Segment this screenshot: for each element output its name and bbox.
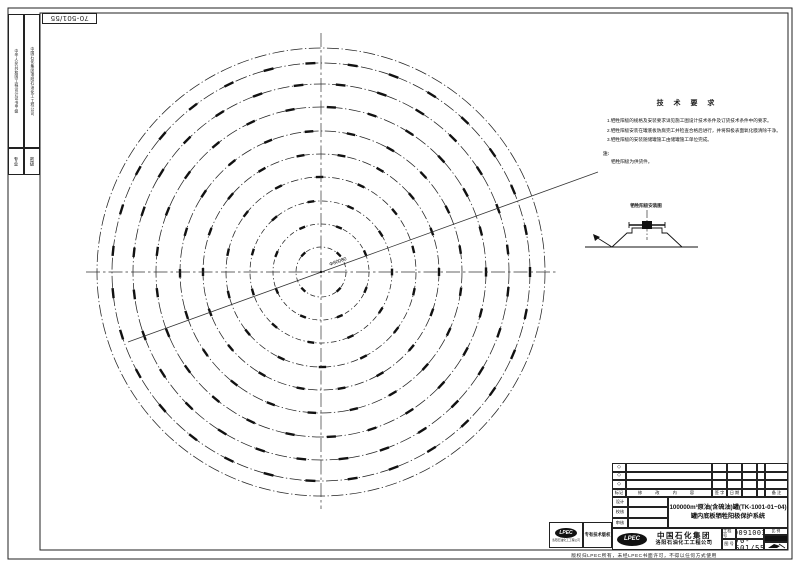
anode-mark	[305, 480, 315, 481]
anode-mark	[185, 171, 190, 178]
sign-row-check-label: 校核	[612, 507, 628, 517]
anode-mark	[368, 114, 377, 117]
drawing-no-label: 图 号	[722, 539, 736, 550]
anode-mark	[490, 149, 496, 157]
anode-mark	[409, 193, 414, 199]
rev-header-extra	[742, 489, 757, 498]
rev-extra-cell	[742, 480, 757, 489]
anode-mark	[348, 478, 358, 480]
anode-mark	[360, 355, 367, 358]
anode-mark	[413, 288, 415, 295]
anode-mark	[347, 335, 353, 338]
anode-mark	[409, 345, 414, 351]
anode-mark	[380, 447, 389, 450]
anode-mark	[377, 168, 384, 172]
rev-sign-cell	[712, 463, 727, 472]
anode-mark	[245, 329, 250, 335]
anode-mark	[272, 216, 277, 220]
anode-mark	[431, 309, 434, 316]
anode-mark	[212, 142, 219, 148]
tech-requirement-item: 1.牺牲阳极的规格及安装要求详见施工图设计技术条件及订货技术条件中的要求。	[607, 119, 780, 124]
anode-mark	[252, 289, 254, 296]
sign-row-signature-cell	[628, 518, 668, 528]
anode-mark	[336, 226, 342, 228]
anode-mark	[364, 287, 366, 293]
anode-mark	[507, 287, 508, 297]
rev-mark-cell: ◇	[612, 472, 626, 481]
anode-mark	[134, 248, 135, 258]
rev-mark-cell: ◇	[612, 463, 626, 472]
proprietary-stamp: LPEC 洛阳石油化工工程公司 专有技术版权	[549, 522, 612, 548]
anode-mark	[228, 345, 233, 351]
projection-symbol-icon	[766, 543, 786, 549]
anode-mark	[389, 74, 398, 77]
note-label: 注:	[603, 152, 780, 157]
anode-mark	[253, 93, 262, 96]
drawing-title-cell: 100000m³原油(含硫油)罐(TK-1001-01~04) 罐内底板牺牲阳极…	[668, 497, 788, 528]
anode-mark	[264, 140, 272, 143]
anode-mark	[463, 347, 467, 355]
rev-remark-cell	[765, 463, 788, 472]
anode-mark	[387, 147, 394, 151]
anode-mark	[120, 330, 123, 340]
detail-drawing-label: 牺牲阳极安装图	[610, 203, 682, 209]
anode-mark	[297, 458, 307, 459]
anode-mark	[389, 466, 398, 469]
anode-mark	[228, 193, 233, 199]
anode-mark	[392, 209, 397, 215]
anode-mark	[525, 225, 527, 235]
rev-date-cell	[727, 463, 742, 472]
anode-mark	[278, 357, 285, 360]
anode-mark	[308, 342, 315, 343]
anode-mark	[216, 111, 224, 116]
anode-mark	[157, 247, 158, 256]
anode-mark	[447, 328, 451, 336]
tech-requirement-item: 2.牺牲阳极安装在罐底板防腐完工并检查合格后进行，并将阳极表面氧化膜清除干净。	[607, 129, 780, 134]
anode-mark	[337, 315, 343, 317]
anode-mark	[377, 372, 384, 376]
anode-mark	[394, 327, 399, 333]
rev-header-mark: 标记	[612, 489, 626, 498]
anode-mark	[427, 92, 435, 97]
sign-row-audit-label: 审核	[612, 518, 628, 528]
rev-mark-cell: ◇	[612, 480, 626, 489]
title-block: ◇ ◇ ◇ 标记 修 改 内 容 签 字 日 期 备 注 设计 校核 审核	[612, 463, 788, 550]
project-no-label: 工程号	[722, 528, 736, 539]
company-name-line2: 洛阳石油化工工程公司	[656, 541, 713, 546]
anode-mark	[252, 249, 254, 256]
anode-mark	[406, 409, 414, 414]
anode-mark	[305, 63, 315, 64]
anode-mark	[203, 349, 208, 356]
anode-mark	[275, 185, 282, 188]
copyright-note: 版权归LPEC所有，未经LPEC书面许可，不得以任何方式使用	[500, 552, 788, 559]
rev-sign-cell	[712, 480, 727, 489]
anode-mark	[120, 205, 123, 215]
anode-mark	[184, 137, 191, 144]
anode-mark	[327, 107, 336, 108]
rev-header-extra	[757, 489, 765, 498]
microfilm-cell	[764, 535, 788, 542]
anode-mark	[247, 121, 255, 125]
anode-mark	[460, 287, 461, 295]
anode-mark	[185, 365, 190, 372]
anode-mark	[297, 388, 305, 389]
anode-mark	[461, 117, 468, 124]
anode-mark	[350, 408, 358, 410]
anode-mark	[224, 82, 233, 86]
anode-mark	[136, 166, 141, 175]
anode-mark	[185, 311, 188, 319]
anode-mark	[113, 246, 114, 256]
anode-mark	[209, 228, 212, 235]
anode-mark	[511, 185, 515, 194]
anode-mark	[427, 447, 435, 452]
lpec-logo-icon: LPEC	[617, 533, 647, 546]
anode-mark	[212, 396, 219, 402]
binding-tag-1: 专业	[8, 148, 24, 175]
company-cell: LPEC 中国石化集团 洛阳石油化工工程公司	[612, 528, 722, 550]
anode-mark	[247, 419, 255, 423]
anode-mark	[186, 403, 193, 410]
anode-mark	[460, 245, 461, 253]
anode-mark	[348, 65, 358, 67]
anode-mark	[264, 68, 274, 71]
anode-mark	[136, 369, 141, 378]
anode-mark	[480, 227, 482, 236]
anode-mark	[166, 207, 169, 215]
binding-strip-certificate: 中华人民共和国工程设计证书甲级	[8, 14, 24, 148]
tech-requirement-item: 3.牺牲阳极的安装随储罐施工由储罐施工单位完成。	[607, 138, 780, 143]
anode-mark	[160, 369, 165, 377]
rev-extra-cell	[757, 480, 765, 489]
stamp-label: 专有技术版权	[583, 522, 612, 548]
anode-mark	[327, 436, 336, 437]
rev-date-cell	[727, 480, 742, 489]
anode-mark	[379, 308, 383, 314]
anode-mark	[364, 250, 366, 256]
anode-mark	[339, 458, 349, 459]
anode-mark	[189, 104, 197, 110]
anode-mark	[300, 315, 306, 317]
anode-mark	[438, 382, 444, 389]
binding-strip-company-text: 中国石化集团洛阳石油化工工程公司	[30, 47, 34, 116]
anode-mark	[478, 367, 483, 375]
rev-content-cell	[626, 463, 712, 472]
anode-mark	[244, 211, 249, 217]
tech-requirements: 技 术 要 求 1.牺牲阳极的规格及安装要求详见施工图设计技术条件及订货技术条件…	[595, 98, 780, 165]
detail-arrowhead-icon	[593, 234, 600, 241]
rev-sign-cell	[712, 472, 727, 481]
anode-mark	[301, 288, 305, 292]
anode-mark	[337, 288, 341, 292]
projection-symbol-cell	[764, 542, 788, 550]
anode-mark	[275, 251, 277, 257]
anode-mark	[338, 388, 346, 389]
rev-content-cell	[626, 480, 712, 489]
anode-mark	[358, 184, 365, 187]
anode-mark	[420, 172, 426, 178]
rev-header-date: 日 期	[727, 489, 742, 498]
stamp-logo-cell: LPEC 洛阳石油化工工程公司	[549, 522, 583, 548]
anode-mark	[449, 135, 456, 142]
anode-mark	[379, 231, 383, 237]
rev-extra-cell	[742, 472, 757, 481]
anode-mark	[185, 228, 187, 236]
anode-mark	[229, 160, 236, 165]
anode-mark	[480, 309, 482, 318]
anode-mark	[490, 387, 496, 395]
note-text: 牺牲阳极为供货件。	[611, 160, 780, 165]
anode-mark	[142, 207, 145, 216]
diameter-line	[128, 172, 598, 342]
anode-mark	[477, 167, 482, 175]
drawing-sheet: Φ80000 中华人民共和国工程设计证书甲级 中国石化集团洛阳石油化工工程公司 …	[0, 0, 800, 566]
anode-mark	[446, 206, 450, 214]
anode-mark	[159, 132, 166, 140]
anode-mark	[224, 457, 233, 461]
anode-mark	[227, 249, 229, 256]
rev-content-cell	[626, 472, 712, 481]
sign-row-signature-cell	[628, 507, 668, 517]
anode-mark	[347, 206, 353, 209]
anode-mark	[301, 252, 305, 256]
anode-mark	[286, 109, 295, 111]
detail-lead-wire	[596, 237, 612, 247]
rev-header-content: 修 改 内 容	[626, 489, 712, 498]
anode-mark	[305, 131, 314, 132]
anode-mark	[422, 364, 428, 370]
anode-mark	[159, 169, 164, 177]
anode-mark	[525, 309, 527, 319]
anode-mark	[507, 245, 508, 255]
binding-tag-2: 密级	[24, 148, 40, 175]
drawing-title-line2: 罐内底板牺牲阳极保护系统	[691, 514, 765, 520]
stamp-lpec-logo-icon: LPEC	[555, 528, 577, 538]
drawing-title-line1: 100000m³原油(含硫油)罐(TK-1001-01~04)	[669, 505, 786, 511]
rev-extra-cell	[757, 463, 765, 472]
anode-mark	[272, 323, 277, 327]
anode-mark	[201, 190, 206, 197]
rev-date-cell	[727, 472, 742, 481]
anode-mark	[338, 155, 346, 156]
company-name-stack: 中国石化集团 洛阳石油化工工程公司	[647, 532, 721, 547]
scale-label-cell: 比 例	[764, 528, 788, 535]
anode-detail-drawing	[585, 210, 698, 247]
anode-mark	[438, 156, 444, 163]
anode-mark	[157, 288, 158, 297]
anode-mark	[286, 433, 295, 435]
anode-mark	[463, 189, 467, 197]
anode-mark	[113, 288, 114, 298]
tech-requirements-title: 技 术 要 求	[595, 98, 780, 108]
anode-mark	[299, 227, 305, 229]
anode-mark	[259, 168, 266, 172]
tank-center-point	[320, 271, 322, 273]
sign-row-design-label: 设计	[612, 497, 628, 507]
anode-mark	[347, 133, 355, 135]
fold-drawing-number: 70-501/55	[42, 13, 97, 24]
stamp-logo-text: LPEC	[559, 531, 572, 536]
rev-remark-cell	[765, 472, 788, 481]
anode-mark	[308, 201, 315, 202]
anode-mark	[337, 252, 341, 256]
anode-mark	[377, 93, 386, 96]
binding-strip-company: 中国石化集团洛阳石油化工工程公司	[24, 14, 40, 148]
anode-mark	[406, 130, 414, 135]
stamp-caption: 洛阳石油化工工程公司	[552, 539, 580, 542]
anode-mark	[412, 246, 414, 253]
binding-tag-1-text: 专业	[13, 157, 19, 166]
drawing-no-value: 70-501/55	[736, 539, 764, 550]
anode-mark	[452, 400, 459, 407]
anode-mark	[218, 429, 226, 434]
anode-mark	[368, 428, 377, 431]
lpec-logo-text: LPEC	[624, 536, 640, 542]
anode-mark	[511, 350, 515, 359]
anode-mark	[267, 402, 275, 405]
anode-mark	[297, 155, 305, 156]
anode-mark	[461, 420, 468, 427]
anode-mark	[134, 290, 135, 300]
anode-mark	[389, 391, 396, 395]
anode-mark	[418, 428, 426, 433]
anode-mark	[416, 110, 424, 115]
anode-mark	[259, 372, 266, 376]
binding-tag-2-text: 密级	[29, 157, 35, 166]
anode-mark	[166, 329, 169, 337]
rev-header-sign: 签 字	[712, 489, 727, 498]
anode-mark	[308, 412, 317, 413]
anode-mark	[336, 85, 346, 86]
binding-strip-certificate-text: 中华人民共和国工程设计证书甲级	[14, 49, 18, 114]
project-no-value: 13009100301	[736, 528, 764, 539]
anode-mark	[159, 404, 166, 412]
rev-extra-cell	[742, 463, 757, 472]
anode-mark	[264, 473, 274, 476]
anode-mark	[189, 434, 197, 440]
sign-row-signature-cell	[628, 497, 668, 507]
anode-mark	[231, 380, 238, 385]
anode-mark	[256, 448, 265, 451]
company-name-line1: 中国石化集团	[657, 532, 711, 540]
rev-extra-cell	[757, 472, 765, 481]
anode-mark	[228, 291, 230, 298]
anode-mark	[294, 85, 304, 86]
anode-mark	[497, 328, 500, 337]
rev-remark-cell	[765, 480, 788, 489]
rev-header-remark: 备 注	[765, 489, 788, 498]
